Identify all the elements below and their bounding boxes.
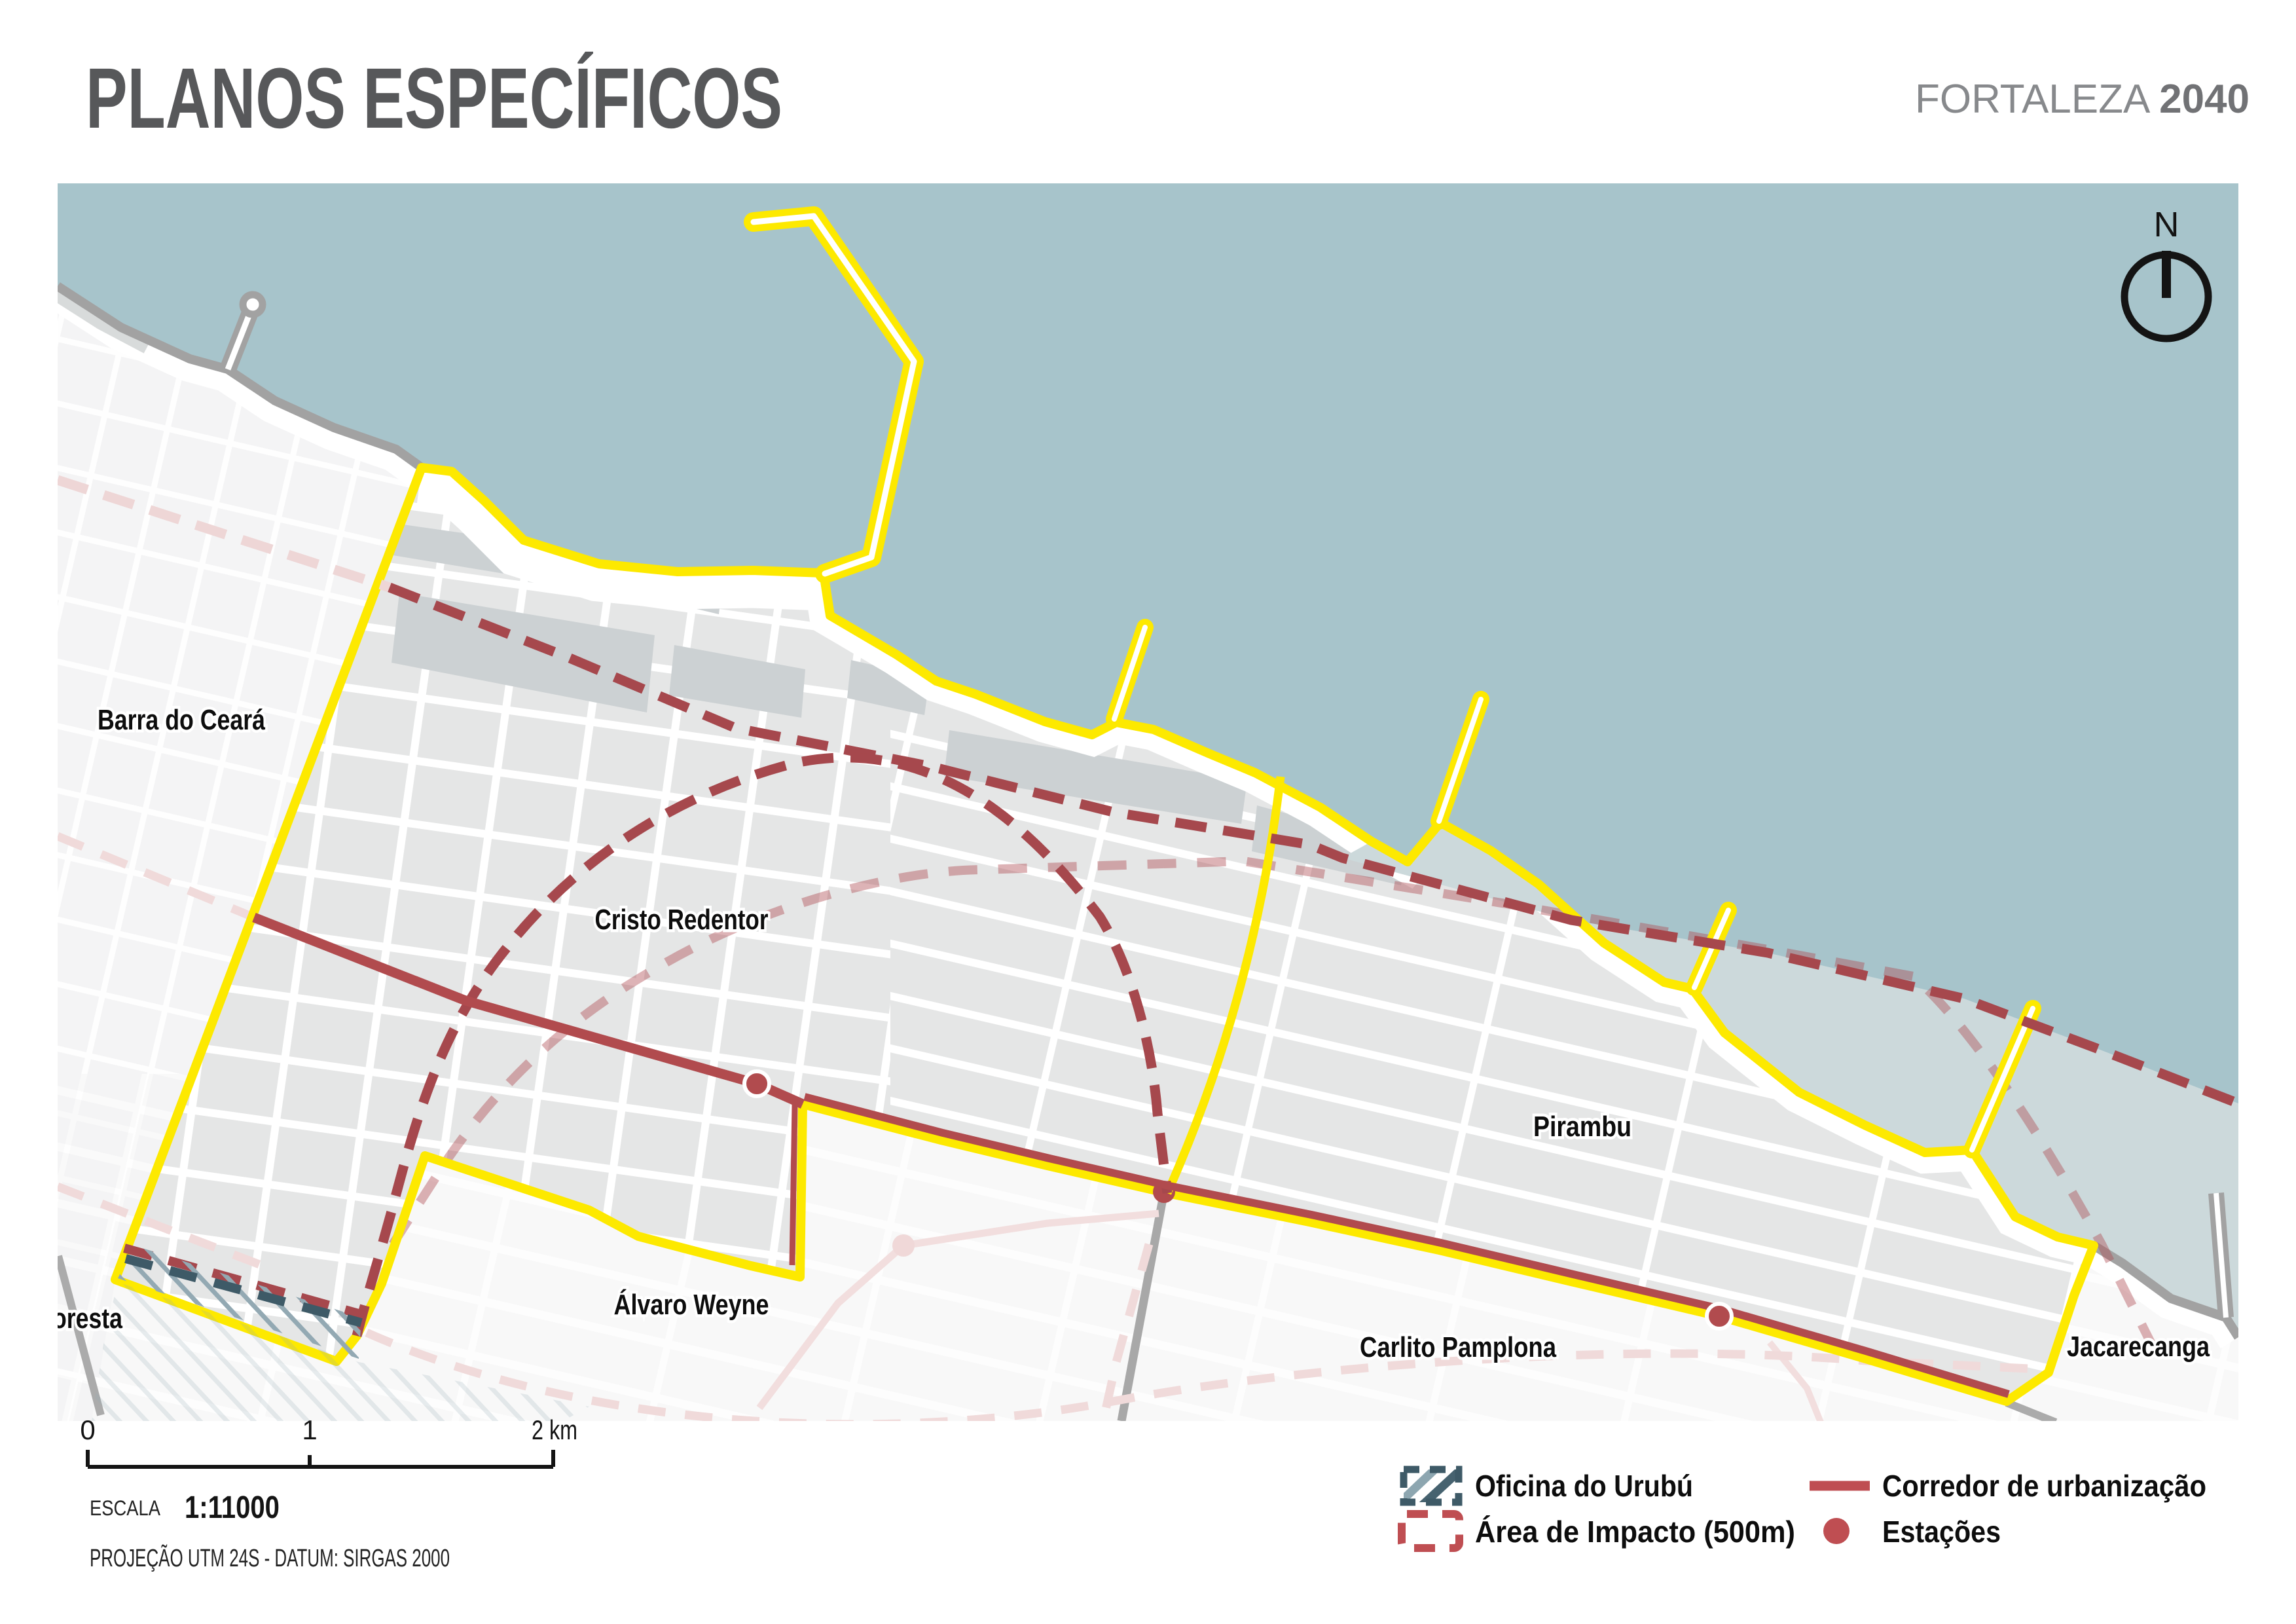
svg-text:1: 1	[302, 1414, 317, 1445]
svg-text:ESCALA: ESCALA	[90, 1496, 161, 1520]
svg-text:N: N	[2154, 205, 2179, 244]
svg-text:Jacarecanga: Jacarecanga	[2067, 1331, 2210, 1363]
svg-text:FORTALEZA 2040: FORTALEZA 2040	[1915, 77, 2250, 122]
svg-text:1:11000: 1:11000	[185, 1490, 280, 1525]
svg-text:Área de Impacto (500m): Área de Impacto (500m)	[1475, 1515, 1795, 1549]
svg-text:Estações: Estações	[1882, 1515, 2001, 1549]
svg-text:Carlito Pamplona: Carlito Pamplona	[1360, 1331, 1556, 1363]
svg-text:oresta: oresta	[52, 1302, 122, 1335]
svg-text:2 km: 2 km	[532, 1414, 577, 1445]
svg-text:Corredor de urbanização: Corredor de urbanização	[1882, 1469, 2206, 1503]
svg-text:PLANOS ESPECÍFICOS: PLANOS ESPECÍFICOS	[86, 50, 782, 146]
svg-text:Álvaro Weyne: Álvaro Weyne	[614, 1288, 769, 1321]
svg-text:Cristo Redentor: Cristo Redentor	[595, 904, 769, 936]
svg-text:Pirambu: Pirambu	[1533, 1111, 1631, 1143]
svg-text:Barra do Ceará: Barra do Ceará	[98, 704, 265, 736]
svg-text:0: 0	[80, 1414, 95, 1445]
svg-text:PROJEÇÃO UTM 24S - DATUM: SIRG: PROJEÇÃO UTM 24S - DATUM: SIRGAS 2000	[90, 1544, 450, 1572]
svg-text:Oficina do Urubú: Oficina do Urubú	[1475, 1469, 1693, 1503]
